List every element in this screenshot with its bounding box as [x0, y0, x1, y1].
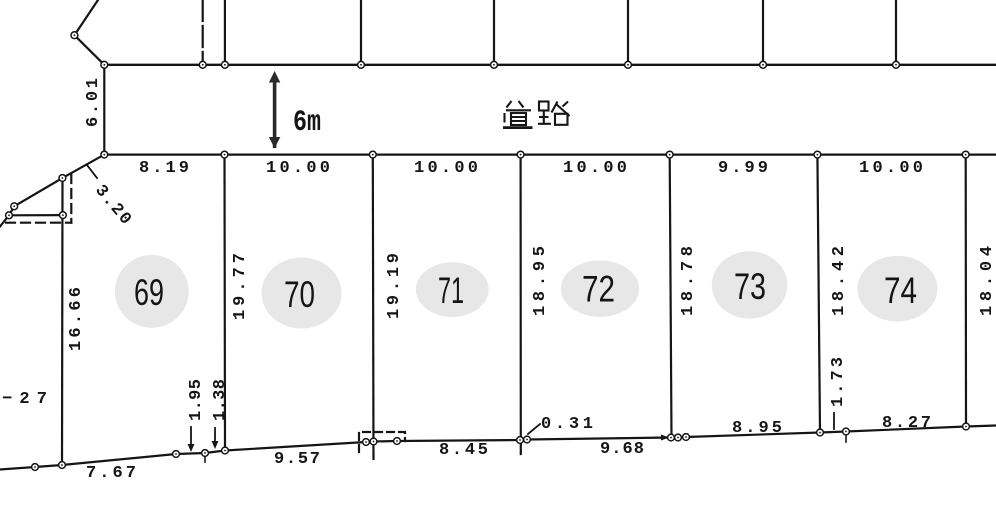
svg-text:8.45: 8.45 [439, 441, 488, 460]
svg-text:7.67: 7.67 [86, 464, 136, 483]
svg-text:10.00: 10.00 [859, 159, 923, 178]
svg-text:1.95: 1.95 [187, 379, 206, 421]
svg-text:0.31: 0.31 [541, 415, 593, 434]
svg-text:3.20: 3.20 [90, 182, 134, 229]
svg-text:−27: −27 [2, 390, 47, 409]
svg-text:74: 74 [884, 270, 917, 311]
svg-text:6.01: 6.01 [84, 78, 103, 127]
svg-text:10.00: 10.00 [563, 159, 627, 178]
svg-text:9.99: 9.99 [718, 159, 768, 178]
svg-text:71: 71 [438, 270, 464, 311]
svg-text:8.19: 8.19 [139, 159, 189, 178]
svg-text:18.42: 18.42 [830, 246, 849, 316]
svg-text:69: 69 [134, 272, 164, 313]
svg-text:1.73: 1.73 [829, 357, 848, 407]
svg-text:18.04: 18.04 [978, 246, 996, 316]
svg-text:72: 72 [582, 269, 615, 310]
svg-text:8.27: 8.27 [882, 414, 931, 433]
svg-text:9.68: 9.68 [600, 440, 644, 459]
svg-text:9.57: 9.57 [274, 450, 320, 469]
svg-text:70: 70 [284, 274, 315, 315]
svg-text:10.00: 10.00 [414, 159, 478, 178]
svg-text:18.95: 18.95 [531, 246, 550, 316]
svg-text:10.00: 10.00 [266, 159, 330, 178]
svg-text:6m: 6m [293, 106, 321, 140]
svg-text:18.78: 18.78 [679, 246, 698, 316]
svg-text:16.66: 16.66 [67, 287, 86, 351]
svg-text:1.38: 1.38 [211, 379, 230, 421]
svg-text:73: 73 [734, 266, 766, 307]
svg-text:19.77: 19.77 [231, 253, 250, 320]
svg-text:19.19: 19.19 [385, 253, 404, 319]
